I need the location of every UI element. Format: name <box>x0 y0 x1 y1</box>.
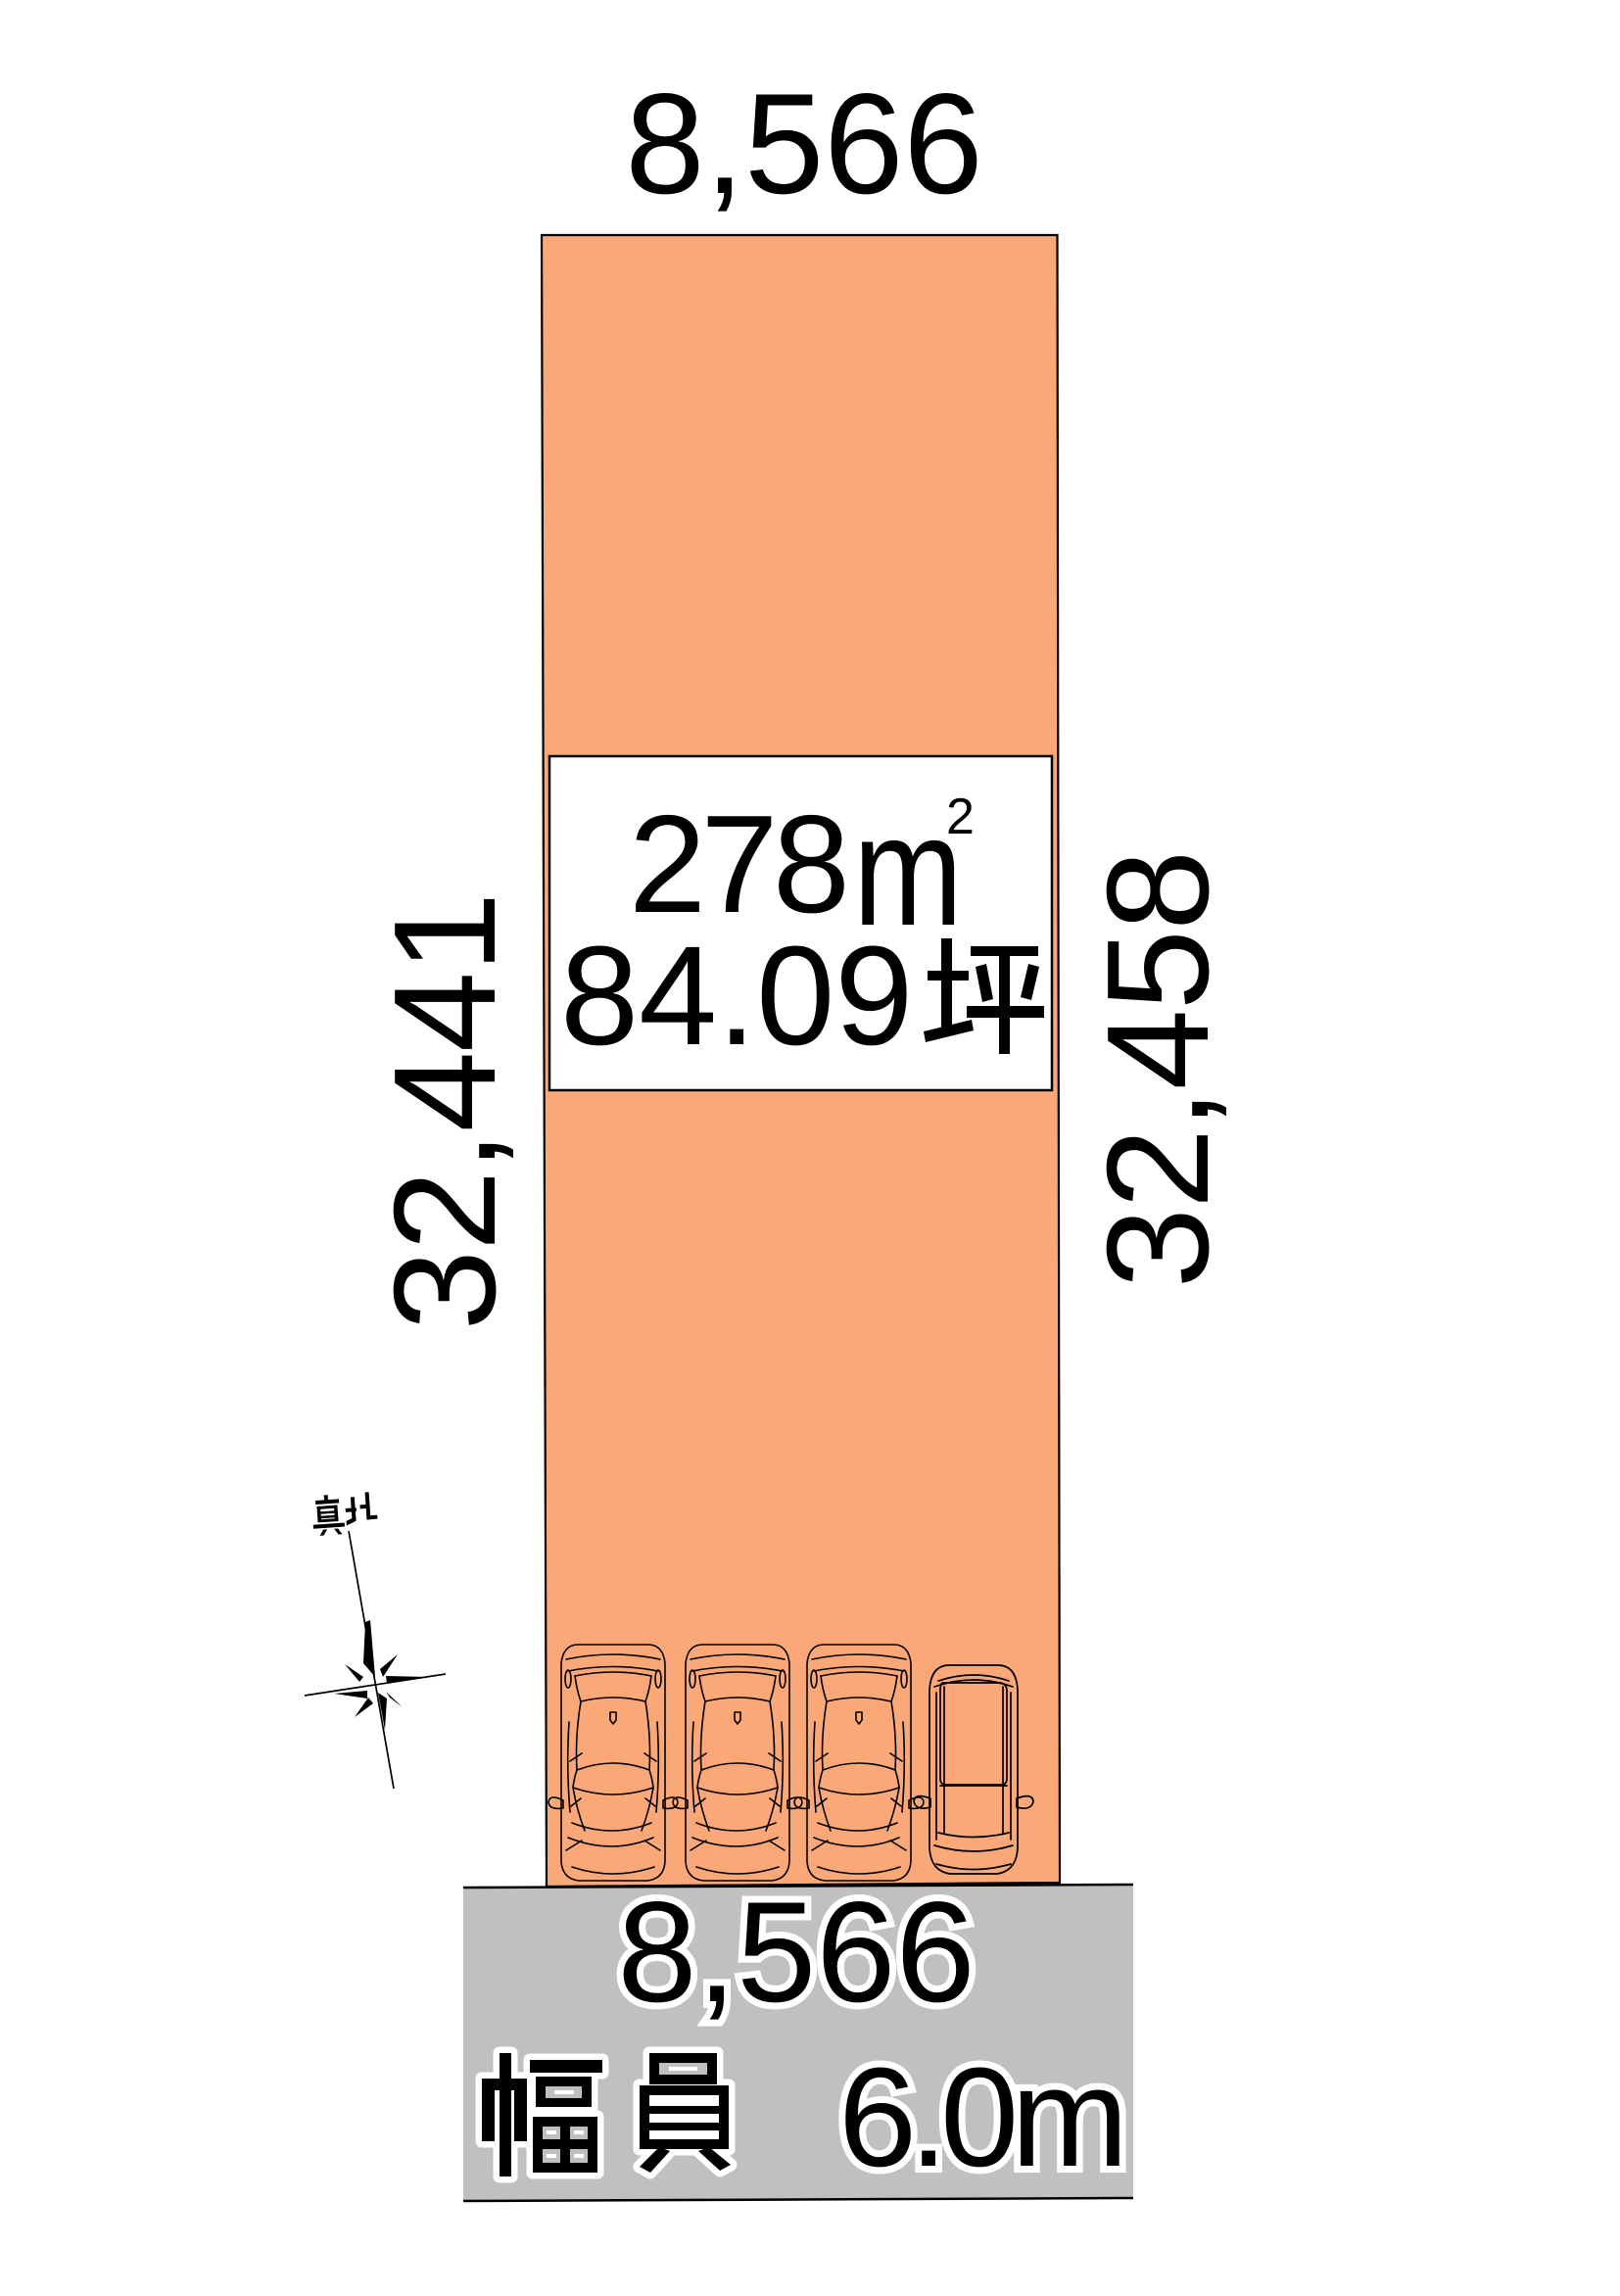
svg-text:32,458: 32,458 <box>1077 851 1239 1289</box>
svg-text:6.0m: 6.0m <box>838 2038 1120 2196</box>
svg-text:2: 2 <box>946 789 975 845</box>
svg-text:8,566: 8,566 <box>625 64 982 223</box>
svg-text:84.09: 84.09 <box>560 917 913 1075</box>
svg-text:32,441: 32,441 <box>364 893 526 1331</box>
svg-text:8,566: 8,566 <box>617 1872 975 2032</box>
